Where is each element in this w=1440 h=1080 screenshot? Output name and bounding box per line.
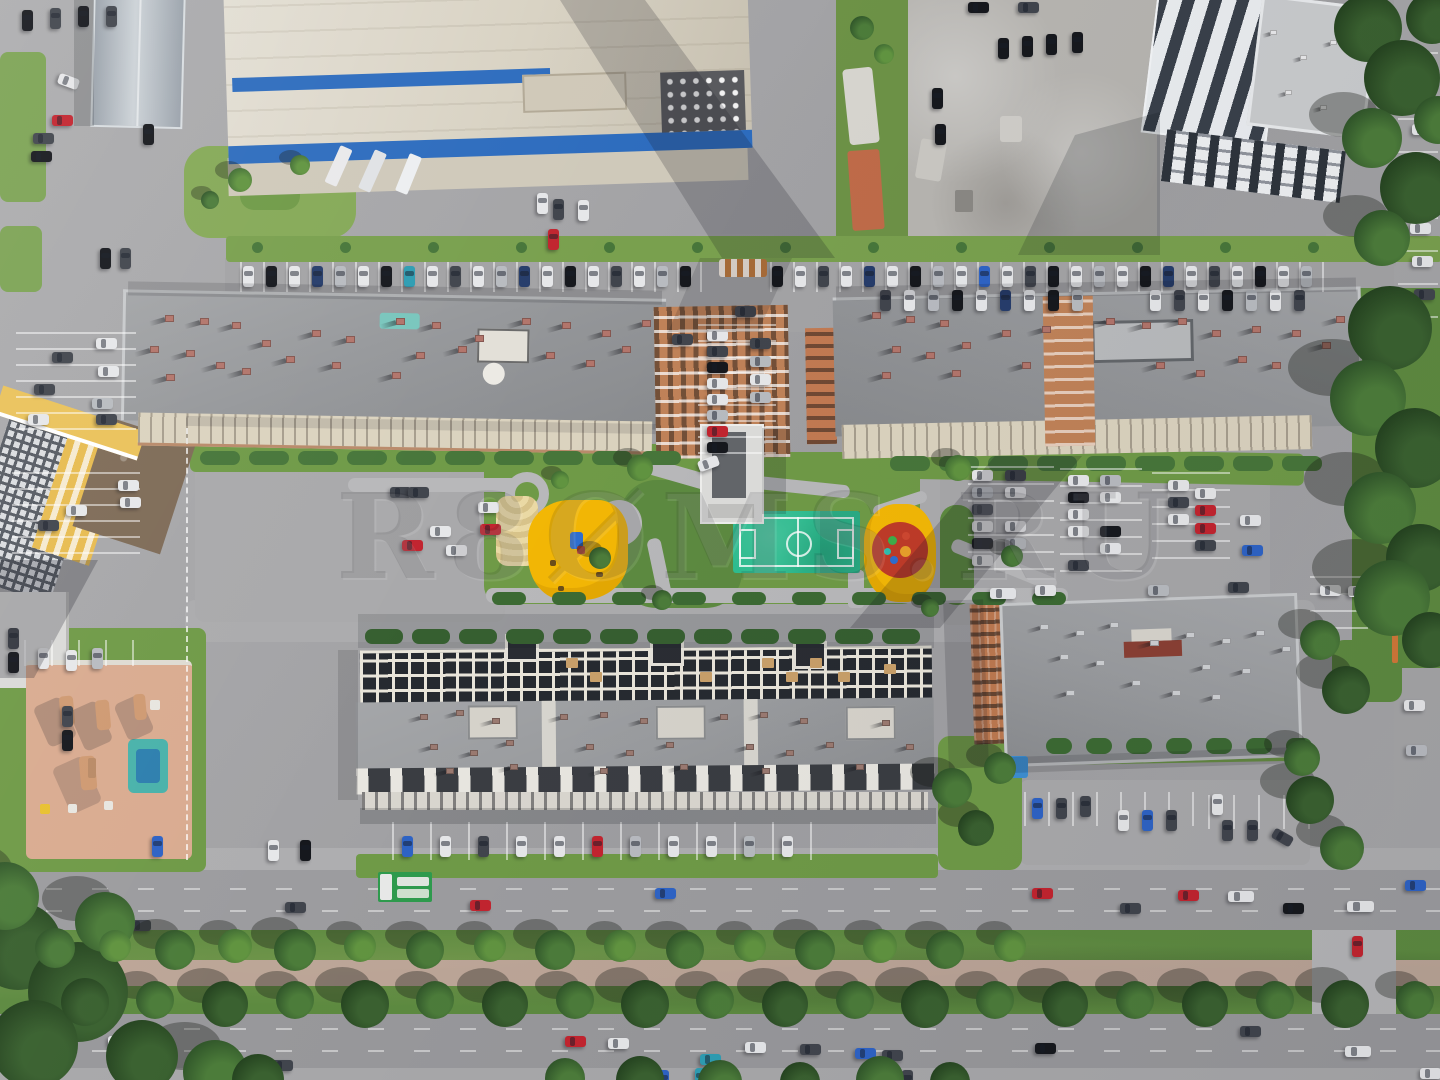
car-glass — [1057, 803, 1066, 808]
car — [390, 487, 411, 498]
car-glass — [1353, 587, 1358, 596]
right-road — [1394, 0, 1440, 870]
car — [1228, 582, 1249, 593]
stall-line — [1048, 792, 1050, 826]
car — [22, 10, 33, 31]
car — [578, 200, 589, 221]
car-glass — [783, 841, 792, 846]
car — [98, 366, 119, 377]
car-glass — [1299, 795, 1308, 800]
goal-box — [837, 529, 854, 559]
car-glass — [1010, 471, 1015, 480]
car — [1247, 820, 1258, 841]
car — [1168, 497, 1189, 508]
car — [1100, 526, 1121, 537]
stall-line — [1072, 792, 1074, 826]
car — [1298, 790, 1309, 811]
car — [1035, 585, 1056, 596]
playground-tan — [26, 660, 192, 859]
stall-line — [1152, 472, 1230, 474]
car-glass — [1248, 825, 1257, 830]
car — [1195, 505, 1216, 516]
car — [120, 248, 131, 269]
rooftop-structure — [846, 706, 896, 740]
car-glass — [485, 525, 490, 534]
car — [92, 398, 113, 409]
hedge — [1086, 456, 1126, 471]
tree — [850, 16, 874, 40]
boulevard-upper-road — [0, 870, 1440, 930]
stall-line — [1120, 792, 1122, 826]
car-glass — [1119, 815, 1128, 820]
car — [1148, 585, 1169, 596]
grass-patch — [0, 52, 46, 202]
stall-line — [968, 534, 1054, 536]
stall-line — [1024, 792, 1026, 826]
tree — [627, 455, 653, 481]
bottom-building-south — [362, 792, 928, 810]
playground-round — [864, 504, 936, 602]
road — [195, 462, 505, 622]
orange-tower-right — [1043, 296, 1096, 447]
car-glass — [517, 841, 526, 846]
car — [1320, 585, 1341, 596]
ramp-lip — [708, 504, 754, 518]
car-glass — [36, 152, 41, 161]
car — [1168, 480, 1189, 491]
stair-tower — [793, 641, 827, 669]
tree — [1001, 545, 1023, 567]
car-glass — [579, 205, 588, 210]
car-glass — [977, 556, 982, 565]
car — [34, 384, 55, 395]
car-glass — [483, 503, 488, 512]
stall-line — [16, 380, 136, 382]
stall-line — [1060, 468, 1142, 470]
median-footpath — [0, 960, 1440, 986]
median-crossing — [1312, 930, 1396, 1014]
parking-canopy — [90, 0, 185, 129]
container — [847, 149, 885, 231]
car-glass — [395, 488, 400, 497]
car-glass — [101, 253, 110, 258]
balcony-band — [356, 763, 934, 794]
car — [1195, 540, 1216, 551]
stall-line — [1208, 795, 1210, 829]
car-glass — [996, 589, 1003, 598]
rooftop-hvac — [660, 70, 746, 133]
car-glass — [57, 353, 62, 362]
car — [1195, 488, 1216, 499]
car — [1222, 820, 1233, 841]
tree — [551, 471, 569, 489]
hedge — [340, 242, 351, 253]
car — [96, 338, 117, 349]
materials — [842, 67, 880, 146]
stall-line — [1060, 502, 1142, 504]
grass-patch — [0, 226, 42, 292]
car — [1080, 796, 1091, 817]
hedge — [516, 242, 527, 253]
car-glass — [79, 11, 88, 16]
car-glass — [1143, 815, 1152, 820]
stall-line — [1308, 795, 1310, 829]
car-glass — [97, 399, 102, 408]
ramp-pit — [712, 432, 746, 498]
car — [548, 229, 559, 250]
car — [100, 248, 111, 269]
grass-patch — [836, 0, 908, 258]
hedge — [200, 451, 240, 465]
stall-line — [16, 348, 136, 350]
hedge — [988, 456, 1028, 471]
stall-line — [1060, 485, 1142, 487]
tree — [201, 191, 219, 209]
apartment-right-roof — [833, 286, 1364, 436]
car-glass — [1275, 831, 1284, 842]
hedge — [604, 242, 615, 253]
tree — [1286, 776, 1334, 824]
car-glass — [1173, 515, 1178, 524]
car-glass — [631, 841, 640, 846]
car-glass — [1245, 516, 1250, 525]
car-glass — [549, 234, 558, 239]
highrise-roof — [1246, 0, 1379, 139]
shadow — [360, 808, 936, 824]
car — [1195, 523, 1216, 534]
lane-marking — [0, 910, 1440, 912]
highrise-under-construction — [1134, 0, 1378, 215]
car — [50, 8, 61, 29]
stair-tower — [505, 634, 539, 662]
waste-bins — [719, 259, 767, 277]
boulevard-lower-road — [0, 1014, 1440, 1070]
car-glass — [1073, 527, 1078, 536]
car — [990, 588, 1016, 599]
car — [1240, 515, 1261, 526]
stall-line — [1310, 576, 1368, 578]
fence-line — [186, 428, 188, 860]
tree-shadow — [938, 800, 979, 827]
car — [31, 151, 52, 162]
car — [1005, 521, 1026, 532]
stall-line — [1152, 540, 1230, 542]
stall-line — [1192, 792, 1194, 826]
hedge — [1233, 456, 1273, 471]
rooftop-red-structure — [1124, 640, 1183, 658]
hedge — [428, 242, 439, 253]
rooftop-structure — [1091, 319, 1194, 363]
car — [1005, 487, 1026, 498]
stall-line — [968, 466, 1054, 468]
car — [1068, 560, 1089, 571]
stall-line — [1152, 489, 1230, 491]
car-glass — [101, 339, 106, 348]
car-glass — [977, 471, 982, 480]
play-pool-inner — [136, 749, 160, 783]
car-glass — [479, 841, 488, 846]
car-glass — [1105, 476, 1110, 485]
car — [1068, 492, 1089, 503]
tree-shadow — [191, 186, 212, 200]
car-glass — [1010, 539, 1015, 548]
car-glass — [1033, 803, 1042, 808]
roof-structure — [522, 72, 627, 113]
hedge — [252, 242, 263, 253]
car — [1166, 810, 1177, 831]
car-glass — [1200, 524, 1205, 533]
car-glass — [1073, 561, 1078, 570]
car-glass — [593, 841, 602, 846]
car-glass — [1173, 481, 1178, 490]
car-glass — [977, 505, 982, 514]
car — [972, 487, 993, 498]
car — [1118, 810, 1129, 831]
stall-line — [1144, 792, 1146, 826]
warehouse-roof — [223, 0, 752, 164]
car-glass — [1073, 476, 1078, 485]
footpath — [949, 538, 1058, 593]
car — [972, 538, 993, 549]
hedge — [249, 451, 289, 465]
car-glass — [144, 129, 153, 134]
car — [446, 545, 467, 556]
stall-line — [968, 500, 1054, 502]
tree — [932, 768, 972, 808]
stall-line — [968, 483, 1054, 485]
car — [52, 352, 73, 363]
grass-patch — [1332, 640, 1402, 702]
highrise-south-facade — [1161, 129, 1346, 203]
hedge — [1308, 242, 1319, 253]
car-glass — [1213, 799, 1222, 804]
stall-line — [16, 364, 136, 366]
car — [1068, 509, 1089, 520]
stall-line — [1310, 610, 1368, 612]
car-glass — [51, 13, 60, 18]
car-glass — [1223, 825, 1232, 830]
car-glass — [103, 367, 108, 376]
car-glass — [1010, 522, 1015, 531]
hedge — [1220, 242, 1231, 253]
stall-line — [1152, 506, 1230, 508]
car — [1068, 526, 1089, 537]
court-center-circle — [786, 531, 812, 557]
car-glass — [1153, 586, 1158, 595]
stall-line — [1060, 553, 1142, 555]
car-glass — [1233, 583, 1238, 592]
car-glass — [1381, 589, 1386, 598]
car-glass — [57, 116, 62, 125]
car-glass — [1200, 541, 1205, 550]
car — [1068, 475, 1089, 486]
stall-line — [1233, 795, 1235, 829]
car-glass — [1081, 801, 1090, 806]
car-glass — [413, 488, 418, 497]
car-glass — [669, 841, 678, 846]
stall-line — [1060, 570, 1142, 572]
car — [972, 504, 993, 515]
goal-box — [739, 529, 756, 559]
car — [1168, 514, 1189, 525]
rooftop-structure — [468, 705, 518, 739]
tree-shadow — [541, 466, 562, 480]
car-glass — [1040, 586, 1045, 595]
car — [537, 193, 548, 214]
stall-line — [1152, 557, 1230, 559]
lane-marking — [0, 1028, 1440, 1030]
stall-line — [1310, 627, 1368, 629]
tree-shadow — [1304, 452, 1387, 506]
car-glass — [93, 653, 102, 658]
tree-shadow — [641, 585, 664, 600]
construction-site — [905, 0, 1157, 254]
car-glass — [977, 539, 982, 548]
stall-line — [1258, 795, 1260, 829]
stall-line — [1096, 792, 1098, 826]
skylight — [483, 363, 505, 385]
car-glass — [61, 75, 69, 85]
play-pool — [128, 739, 168, 793]
tree — [874, 44, 894, 64]
tree-shadow — [1296, 653, 1351, 689]
car — [553, 199, 564, 220]
hedge — [1282, 456, 1322, 471]
car — [972, 521, 993, 532]
rooftop-structure — [656, 705, 706, 739]
hedge — [298, 451, 338, 465]
stall-line — [1152, 523, 1230, 525]
car — [57, 73, 80, 91]
car-glass — [1010, 488, 1015, 497]
stall-line — [1060, 519, 1142, 521]
tree — [958, 810, 994, 846]
playground-yellow — [528, 500, 628, 600]
hedge — [1037, 456, 1077, 471]
car — [972, 470, 993, 481]
hedge — [494, 451, 534, 465]
car-glass — [555, 841, 564, 846]
footpath — [646, 537, 672, 597]
car — [1242, 545, 1263, 556]
car-glass — [554, 204, 563, 209]
car-glass — [745, 841, 754, 846]
hedge — [445, 451, 485, 465]
car — [408, 487, 429, 498]
car — [1032, 798, 1043, 819]
stall-line — [968, 568, 1054, 570]
car-glass — [1325, 586, 1330, 595]
roof-tarp — [380, 313, 420, 330]
aerial-drone-photo: R8ØMS.RU — [0, 0, 1440, 1080]
car-glass — [435, 527, 440, 536]
stall-line — [1283, 795, 1285, 829]
car-glass — [1173, 498, 1178, 507]
playground-red-circle — [872, 522, 928, 578]
tree-shadow — [1312, 539, 1399, 596]
car-glass — [121, 253, 130, 258]
car-glass — [403, 841, 412, 846]
tree-shadow — [1260, 763, 1315, 799]
tree — [1322, 666, 1370, 714]
car — [1100, 492, 1121, 503]
lane-marking — [0, 1050, 1440, 1052]
stall-line — [968, 551, 1054, 553]
car-glass — [1105, 527, 1110, 536]
hedge — [347, 451, 387, 465]
tree-shadow — [989, 539, 1014, 556]
car — [1100, 475, 1121, 486]
car — [33, 133, 54, 144]
car — [1348, 586, 1369, 597]
se-building-roof — [999, 593, 1303, 767]
car — [1005, 538, 1026, 549]
car-glass — [1200, 506, 1205, 515]
car-glass — [38, 134, 43, 143]
tree-shadow — [1296, 814, 1347, 847]
car-glass — [1105, 544, 1110, 553]
car — [402, 540, 423, 551]
car-glass — [23, 15, 32, 20]
stall-line — [968, 517, 1054, 519]
car — [1005, 470, 1026, 481]
car — [1271, 827, 1295, 847]
hedge — [1135, 456, 1175, 471]
car-glass — [1167, 815, 1176, 820]
stair-tower — [650, 638, 684, 666]
car — [430, 526, 451, 537]
car-glass — [1105, 493, 1110, 502]
hedge — [692, 242, 703, 253]
hedge — [868, 242, 879, 253]
bottom-building-roof — [356, 697, 935, 794]
car — [52, 115, 73, 126]
roof-hatch — [477, 328, 530, 363]
apartment-left-roof — [121, 289, 666, 429]
car-glass — [977, 522, 982, 531]
car-glass — [407, 541, 412, 550]
stall-line — [1168, 792, 1170, 826]
hedge — [1184, 456, 1224, 471]
apartment-right-westwall — [805, 328, 837, 445]
sidewalk — [0, 1068, 1440, 1080]
car-glass — [1073, 493, 1078, 502]
lane-marking — [0, 888, 1440, 890]
car-glass — [441, 841, 450, 846]
underground-parking-ramp — [700, 424, 764, 524]
car — [1142, 810, 1153, 831]
car — [972, 555, 993, 566]
car-glass — [1073, 510, 1078, 519]
car — [1100, 543, 1121, 554]
car-glass — [707, 841, 716, 846]
car — [78, 6, 89, 27]
car — [1056, 798, 1067, 819]
car-glass — [1200, 489, 1205, 498]
stall-line — [16, 332, 136, 334]
blue-tarp — [994, 756, 1028, 778]
hedge — [780, 242, 791, 253]
rooftop-cap — [1131, 628, 1171, 641]
stall-line — [1310, 593, 1368, 595]
car-glass — [977, 488, 982, 497]
car-glass — [451, 546, 456, 555]
car — [1212, 794, 1223, 815]
blue-stripe — [232, 68, 550, 92]
sidewalk — [0, 848, 1440, 872]
stall-line — [1060, 536, 1142, 538]
car-glass — [39, 385, 44, 394]
